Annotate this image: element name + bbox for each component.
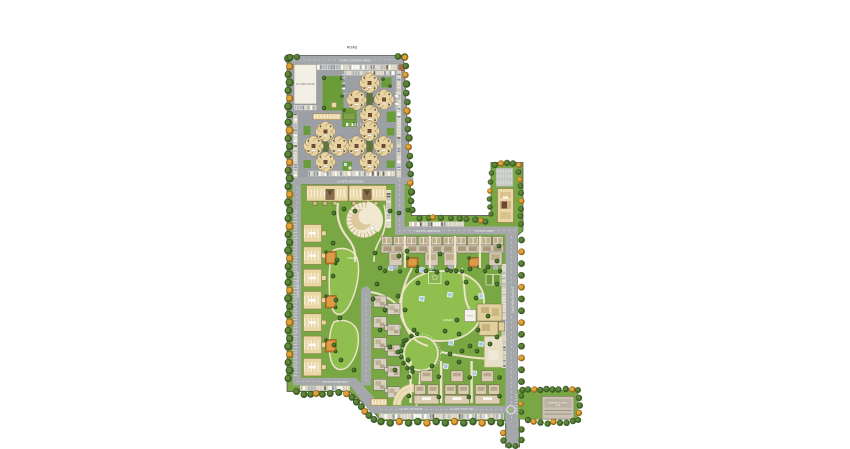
svg-text:GREEN: GREEN bbox=[347, 256, 356, 260]
svg-text:ROAD ( 24.0 MTR. WIDE ): ROAD ( 24.0 MTR. WIDE ) bbox=[341, 58, 372, 62]
svg-text:12.0 MTR. WIDE ROAD: 12.0 MTR. WIDE ROAD bbox=[450, 407, 474, 410]
svg-text:NURSERY SCHOOL: NURSERY SCHOOL bbox=[548, 402, 568, 404]
svg-text:12.0 MTR. WIDE ROAD: 12.0 MTR. WIDE ROAD bbox=[399, 407, 423, 410]
svg-text:GREEN: GREEN bbox=[443, 318, 453, 322]
svg-text:POOL: POOL bbox=[467, 316, 474, 318]
svg-text:FUTURE PHASE: FUTURE PHASE bbox=[296, 83, 315, 86]
svg-text:ROAD: ROAD bbox=[347, 46, 358, 50]
svg-text:12.0 MTR. WIDE ROAD: 12.0 MTR. WIDE ROAD bbox=[323, 381, 348, 384]
svg-text:SITE: SITE bbox=[556, 405, 561, 407]
svg-text:12.0 MTR. WIDE ROAD: 12.0 MTR. WIDE ROAD bbox=[337, 180, 364, 183]
svg-text:12.0 MTR. WIDE ROAD: 12.0 MTR. WIDE ROAD bbox=[296, 272, 299, 298]
